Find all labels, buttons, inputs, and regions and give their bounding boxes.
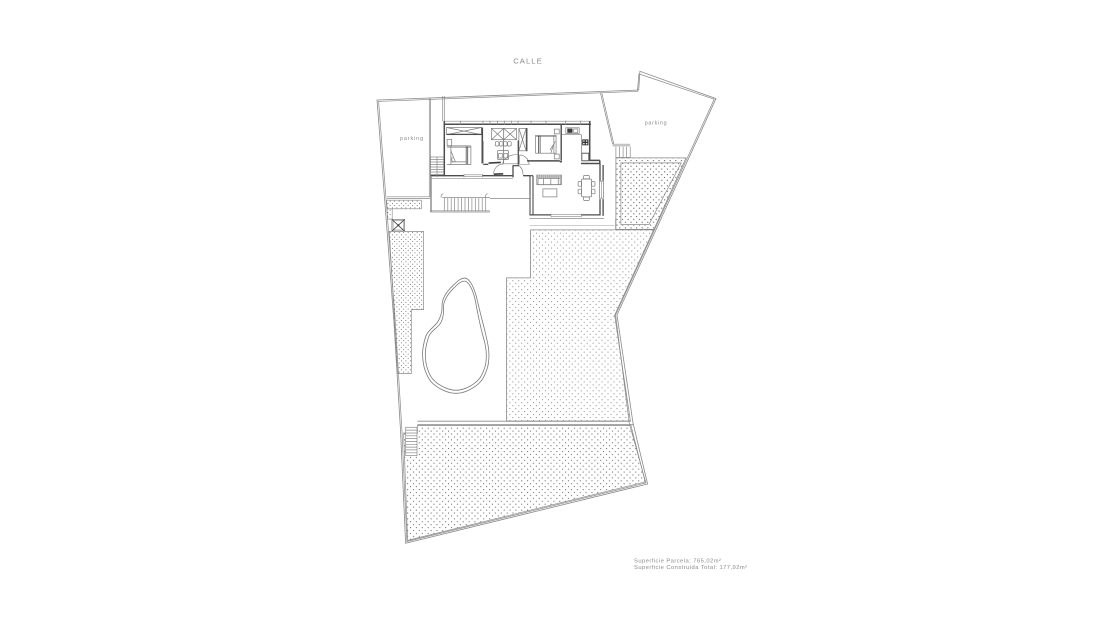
svg-text:CALLE: CALLE: [513, 56, 543, 65]
svg-text:parking: parking: [645, 121, 668, 127]
svg-text:Superficie Construida Total:: Superficie Construida Total: 177,92m²: [634, 565, 748, 571]
svg-text:Superficie Parcela: 765,02m²: Superficie Parcela: 765,02m²: [634, 559, 721, 565]
svg-text:parking: parking: [400, 136, 424, 142]
